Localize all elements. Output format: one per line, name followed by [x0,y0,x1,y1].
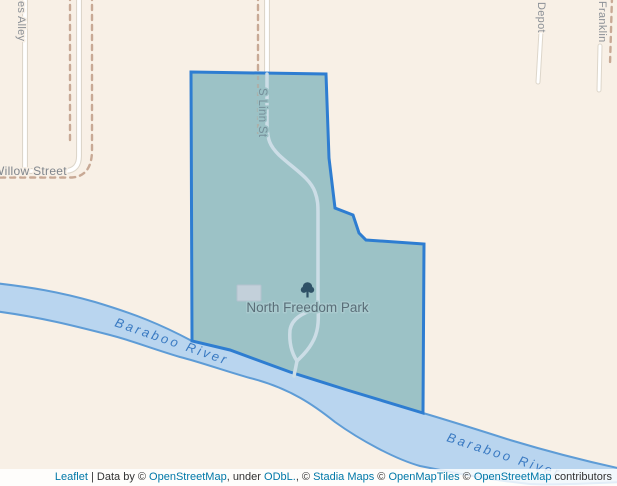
street-label-willow: Willow Street [0,164,67,178]
leaflet-link[interactable]: Leaflet [55,471,88,483]
attribution-bar: Leaflet | Data by © OpenStreetMap, under… [0,469,617,486]
leaflet-map[interactable]: es Alley Willow Street S Linn St Depot F… [0,0,617,486]
tree-canopy-left [301,287,307,293]
openmaptiles-link[interactable]: OpenMapTiles [388,471,459,483]
map-tiles: es Alley Willow Street S Linn St Depot F… [0,0,617,486]
street-label-depot: Depot [535,2,547,33]
osm-link-1[interactable]: OpenStreetMap [149,471,227,483]
attribution-omt-prefix: © [374,471,388,483]
tree-canopy-right [308,287,314,293]
street-label-linn: S Linn St [256,88,268,138]
attribution-data-by: Data by © [97,471,149,483]
street-label-alley: es Alley [15,1,27,42]
odbl-link[interactable]: ODbL. [264,471,296,483]
franklin-road [599,46,600,90]
park-building [237,285,261,301]
attribution-separator: | [88,471,97,483]
attribution-under: , under [227,471,264,483]
attribution-contributors: contributors [551,471,612,483]
stadia-maps-link[interactable]: Stadia Maps [313,471,374,483]
osm-link-2[interactable]: OpenStreetMap [474,471,552,483]
street-label-franklin: Franklin [596,1,608,43]
park-name-label: North Freedom Park [246,300,369,315]
attribution-osm2-prefix: © [460,471,474,483]
attribution-stadia-prefix: , © [296,471,313,483]
